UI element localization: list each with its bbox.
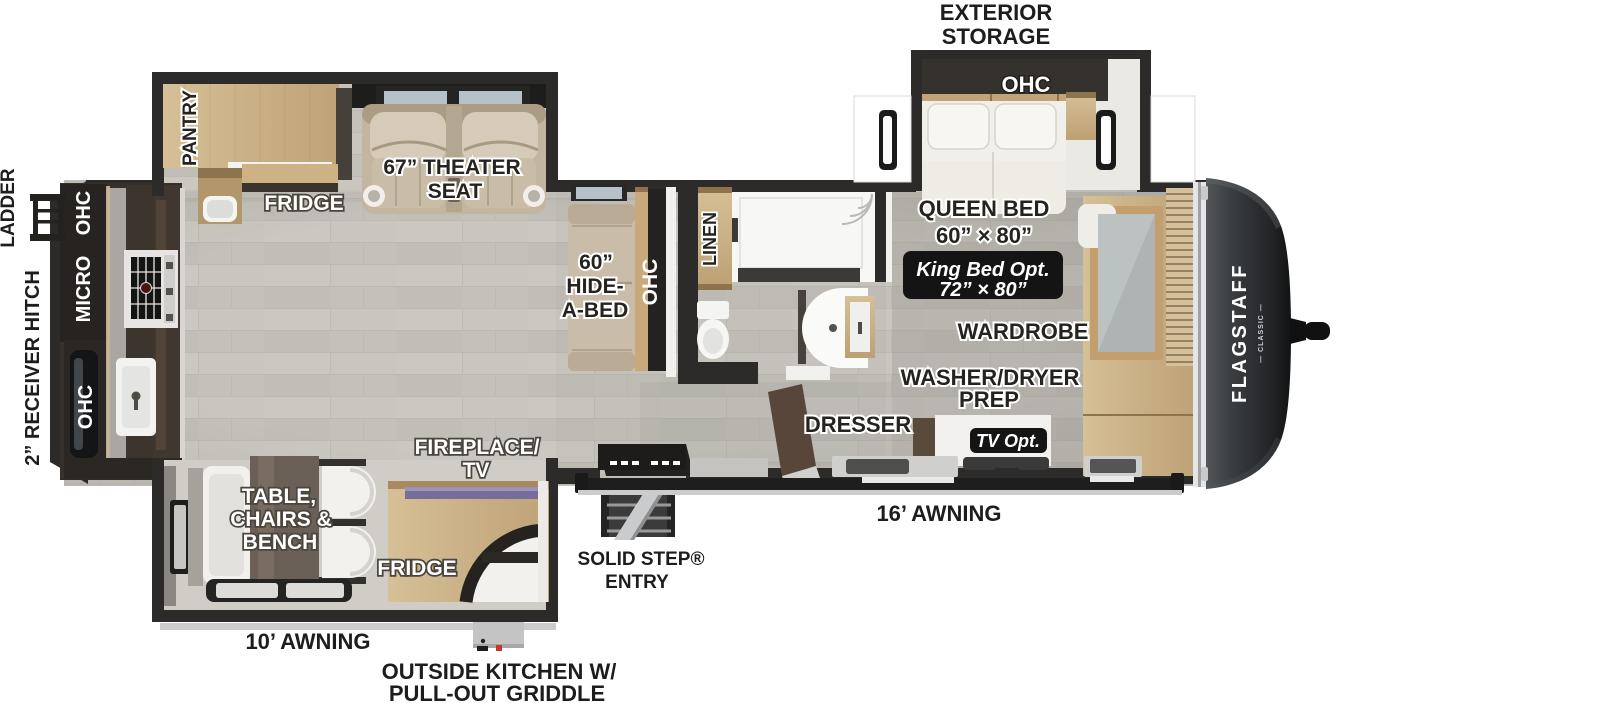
svg-text:PULL-OUT GRIDDLE: PULL-OUT GRIDDLE [389, 681, 605, 703]
svg-text:LADDER: LADDER [0, 168, 19, 247]
svg-text:OHC: OHC [75, 385, 97, 429]
svg-text:2” RECEIVER HITCH: 2” RECEIVER HITCH [22, 270, 44, 466]
svg-text:FRIDGE: FRIDGE [264, 192, 343, 215]
svg-text:ENTRY: ENTRY [605, 572, 669, 593]
svg-text:EXTERIOR: EXTERIOR [940, 0, 1053, 25]
svg-text:WARDROBE: WARDROBE [958, 319, 1089, 344]
svg-text:DRESSER: DRESSER [805, 412, 911, 437]
svg-text:TABLE,: TABLE, [242, 485, 316, 508]
svg-text:QUEEN BED: QUEEN BED [919, 196, 1050, 221]
svg-text:A-BED: A-BED [562, 299, 629, 322]
svg-text:OHC: OHC [639, 259, 662, 306]
svg-text:16’ AWNING: 16’ AWNING [876, 501, 1001, 526]
svg-text:60”: 60” [579, 251, 613, 274]
svg-text:OHC: OHC [1002, 72, 1051, 97]
svg-text:FRIDGE: FRIDGE [377, 557, 456, 580]
svg-text:— CLASSIC —: — CLASSIC — [1258, 303, 1265, 363]
svg-text:FIREPLACE/: FIREPLACE/ [415, 436, 540, 459]
svg-text:OHC: OHC [73, 191, 95, 235]
svg-text:FLAGSTAFF: FLAGSTAFF [1229, 263, 1251, 403]
svg-text:HIDE-: HIDE- [566, 275, 623, 298]
svg-text:STORAGE: STORAGE [942, 24, 1050, 49]
svg-text:TV: TV [463, 459, 490, 482]
svg-text:72” × 80”: 72” × 80” [939, 279, 1026, 301]
svg-text:10’ AWNING: 10’ AWNING [245, 629, 370, 654]
svg-text:PANTRY: PANTRY [180, 90, 201, 166]
svg-text:67” THEATER: 67” THEATER [383, 156, 520, 179]
svg-text:MICRO: MICRO [73, 256, 95, 323]
svg-text:LINEN: LINEN [700, 212, 720, 266]
svg-text:SOLID STEP®: SOLID STEP® [578, 549, 705, 570]
svg-text:CHAIRS &: CHAIRS & [230, 508, 332, 531]
svg-text:BENCH: BENCH [243, 531, 318, 554]
svg-text:King Bed Opt.: King Bed Opt. [916, 259, 1049, 281]
svg-text:SEAT: SEAT [428, 180, 483, 203]
svg-text:PREP: PREP [959, 387, 1019, 412]
svg-text:60” × 80”: 60” × 80” [936, 223, 1032, 248]
svg-text:TV Opt.: TV Opt. [976, 431, 1040, 451]
